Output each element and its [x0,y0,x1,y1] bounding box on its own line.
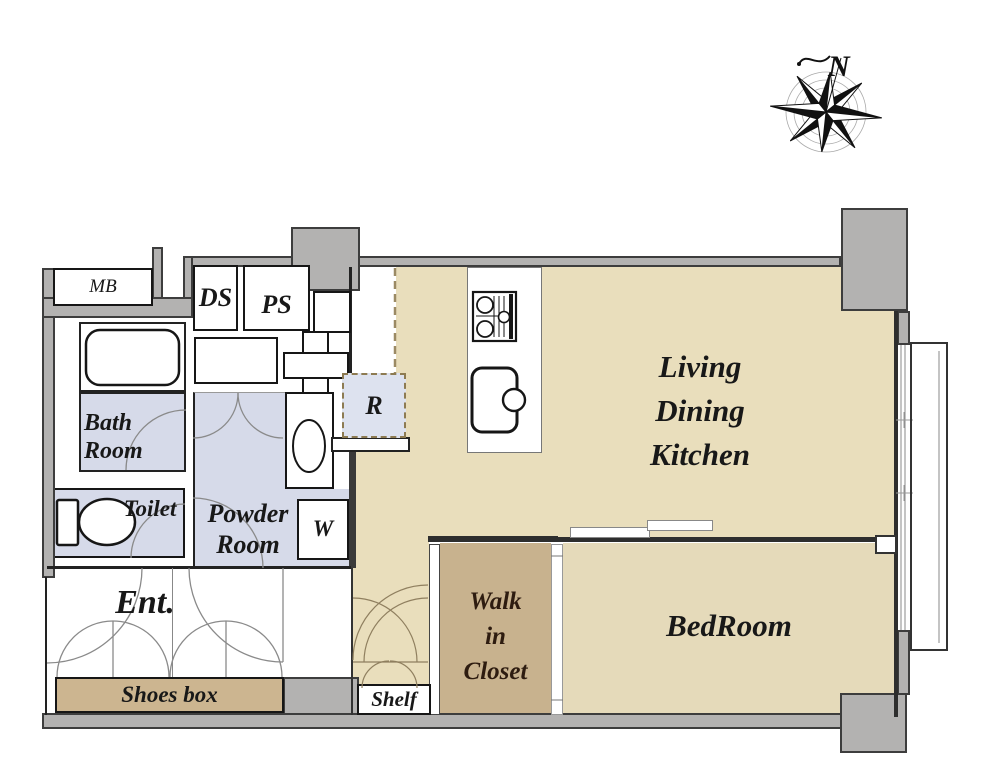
wall-notch-right [875,535,897,554]
window-right-band [898,343,910,633]
counter-step-under-fridge [331,437,410,452]
room-bedroom [563,543,895,714]
duct-cross-horizontal [283,352,349,379]
pipe-space-ps [243,265,310,331]
wall-step-top-right [897,311,910,345]
wall-right [894,311,898,717]
bedroom-window-a [570,527,650,538]
bathtub-area [79,322,186,392]
floor-plan: N Living Dining Kitchen BedRoom Walk in … [0,0,988,783]
box-under-ds [194,337,278,384]
wall-line-ent-inner [172,568,173,677]
duct-space-ds [193,265,238,331]
wall-right-column [897,630,910,695]
bedroom-door-strip [551,544,563,715]
shoes-box [55,677,284,713]
wall-line-under-powder [47,566,351,569]
wall-chunk-shelf [283,677,359,715]
wall-line-ent-left [45,577,47,715]
room-powder-upper [193,392,287,569]
washbasin-vanity [285,392,334,489]
kitchen-counter [467,267,542,453]
shelf-box [357,684,431,715]
label-ent: Ent. [90,578,200,628]
room-toilet [53,488,185,558]
room-ldk-left [352,450,397,537]
refrigerator-box [342,373,406,438]
wall-line-ent-right [351,568,353,715]
closet-folding-doors [57,621,282,677]
room-walk-in-closet [440,543,551,715]
washing-machine-box [297,499,349,560]
box-right-of-ps [313,291,351,333]
room-bath [79,392,186,472]
bedroom-window-b [647,520,713,531]
wall-wic-top [428,536,558,542]
pillar-top-right [841,208,908,311]
compass-rose-icon: N [766,50,886,158]
wall-bottom [42,713,842,729]
compass-north-label: N [827,50,851,83]
meter-box [53,268,153,306]
